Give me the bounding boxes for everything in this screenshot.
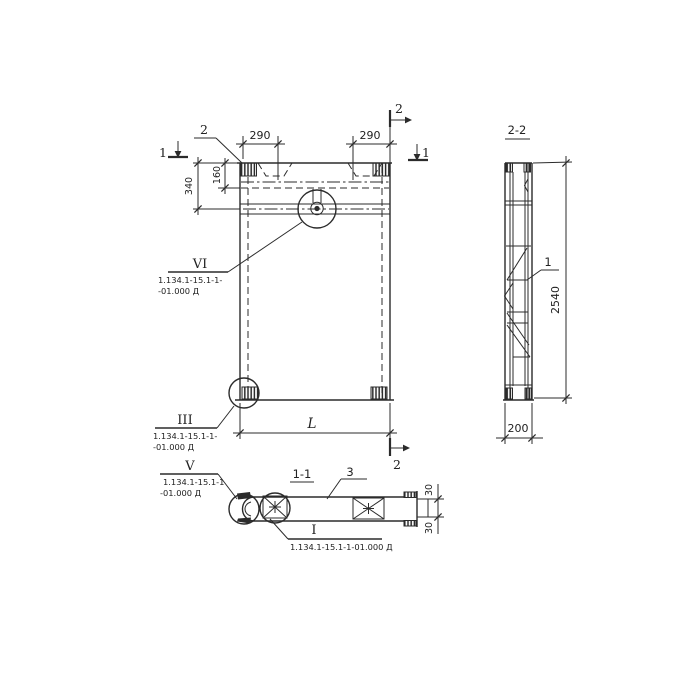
cut-label-2-top: 2 <box>395 101 403 116</box>
recess-left <box>258 163 292 176</box>
callout-vi-ref1: 1.134.1-15.1-1- <box>158 275 222 285</box>
callout-vi-ref2: -01.000 Д <box>158 286 200 296</box>
anchor-plate-bottom-right <box>371 387 387 399</box>
dim-290-left-value: 290 <box>250 129 271 142</box>
dim-340: 340 <box>184 157 240 215</box>
front-view: 1 1 2 2 2 <box>159 101 430 472</box>
callout-i: I 1.134.1-15.1-1-01.000 Д <box>270 519 393 552</box>
dim-30-top-value: 30 <box>424 484 435 496</box>
dim-2540: 2540 <box>533 156 572 404</box>
section-middle-pocket <box>353 498 384 519</box>
side-view-2-2: 2-2 <box>496 123 572 444</box>
dim-200-value: 200 <box>508 422 529 435</box>
dim-length-L: L <box>233 403 397 439</box>
callout-i-ref: 1.134.1-15.1-1-01.000 Д <box>290 542 393 552</box>
side-view-title-text: 2-2 <box>508 123 527 137</box>
callout-iii-numeral: III <box>177 413 192 428</box>
part-1-label: 1 <box>544 255 551 269</box>
part-3-label: 3 <box>346 465 353 479</box>
callout-vi: VI 1.134.1-15.1-1- -01.000 Д <box>158 222 302 296</box>
cut-label-2-bottom: 2 <box>393 457 401 472</box>
callout-vi-numeral: VI <box>192 257 208 272</box>
front-view-outline <box>235 163 394 400</box>
section-1-1-view: 1-1 <box>229 465 444 534</box>
cut-label-1-left: 1 <box>159 145 167 160</box>
callout-iii: III 1.134.1-15.1-1- -01.000 Д <box>153 406 234 452</box>
part-3-callout: 3 <box>327 465 367 499</box>
dim-340-value: 340 <box>184 177 195 195</box>
cut-line-1-left: 1 <box>159 141 188 160</box>
cut-line-2-top: 2 <box>390 101 412 163</box>
panel-technical-drawing: 1 1 2 2 2 <box>0 0 700 700</box>
dim-30-bottom-value: 30 <box>424 522 435 534</box>
dim-290-right-value: 290 <box>360 129 381 142</box>
dim-160-value: 160 <box>212 166 223 184</box>
callout-v-ref1: 1.134.1-15.1-1 <box>163 477 224 487</box>
cut-label-1-right: 1 <box>422 145 430 160</box>
drawing-sheet: 1 1 2 2 2 <box>0 0 700 700</box>
dim-length-value: L <box>307 416 317 432</box>
callout-v: V 1.134.1-15.1-1 -01.000 Д <box>160 459 237 499</box>
side-view-title: 2-2 <box>505 123 530 139</box>
cut-line-1-right: 1 <box>408 144 430 161</box>
section-1-1-title: 1-1 <box>290 467 314 482</box>
callout-v-ref2: -01.000 Д <box>160 488 202 498</box>
callout-iii-ref1: 1.134.1-15.1-1- <box>153 431 217 441</box>
cut-line-2-bottom: 2 <box>390 438 410 472</box>
dim-200: 200 <box>496 403 543 444</box>
corner-detail-callout: 2 <box>194 122 242 163</box>
section-1-1-title-text: 1-1 <box>293 467 312 481</box>
callout-iii-ref2: -01.000 Д <box>153 442 195 452</box>
dim-2540-value: 2540 <box>549 286 562 314</box>
side-view-outline <box>503 163 534 400</box>
anchor-plate-bottom-left <box>242 387 258 399</box>
anchor-plate-top-left <box>241 163 257 176</box>
dim-30-bottom: 30 <box>420 513 444 534</box>
callout-i-numeral: I <box>311 523 316 538</box>
side-view-ribs <box>505 246 532 357</box>
corner-detail-label: 2 <box>200 122 208 137</box>
callout-v-numeral: V <box>184 459 195 474</box>
